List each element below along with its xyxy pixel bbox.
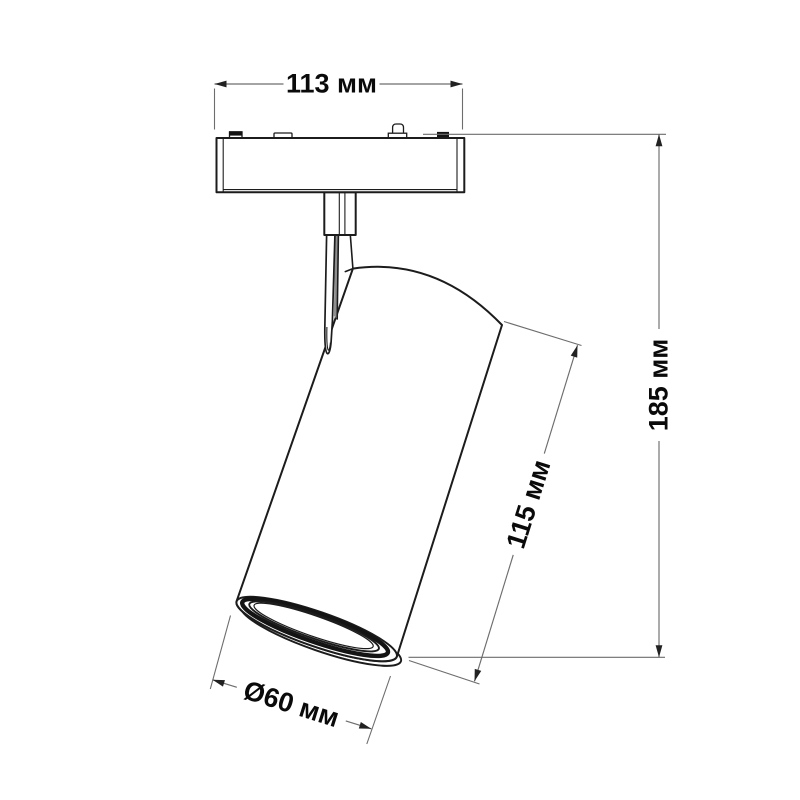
diameter-dimension-label: Ø60 мм [240, 675, 343, 733]
diameter-extension-lower [367, 676, 391, 744]
dimension-width: 113 мм [215, 69, 463, 130]
arm-rear-strap-right-edge [350, 236, 353, 269]
diameter-extension-upper [210, 616, 230, 690]
mounting-stem [324, 192, 355, 235]
width-dimension-label: 113 мм [286, 69, 377, 99]
drawing-canvas: 113 мм 185 мм 115 мм Ø60 мм [0, 0, 800, 800]
technical-drawing: 113 мм 185 мм 115 мм Ø60 мм [0, 0, 800, 800]
body-length-extension-bottom [409, 661, 480, 685]
stem-block [324, 192, 355, 235]
body-length-dimension-label: 115 мм [500, 456, 556, 552]
adjust-knob [388, 124, 406, 138]
height-dimension-label: 185 мм [644, 339, 674, 432]
adapter-housing [217, 138, 465, 192]
lamp-body [231, 267, 502, 678]
body-length-extension-top [504, 322, 582, 346]
